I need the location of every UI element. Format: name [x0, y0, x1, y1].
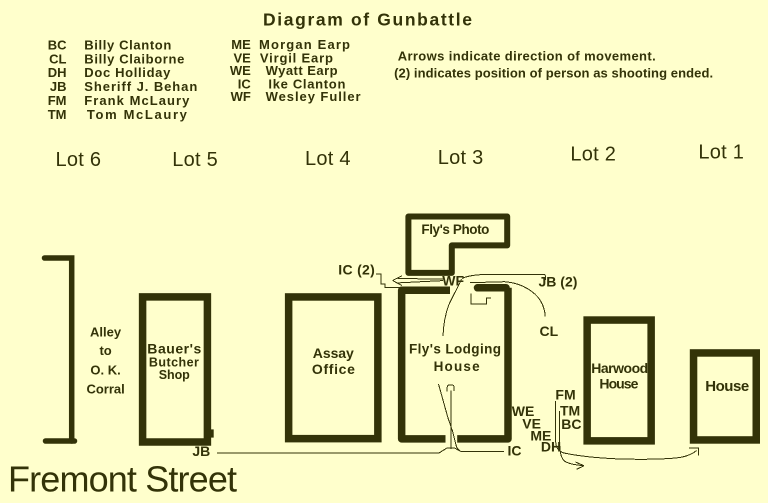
svg-text:Tom McLaury: Tom McLaury [87, 107, 188, 122]
svg-text:Wesley Fuller: Wesley Fuller [266, 89, 361, 104]
svg-text:DH: DH [541, 438, 561, 454]
svg-text:Frank McLaury: Frank McLaury [84, 93, 190, 108]
svg-text:Billy Claiborne: Billy Claiborne [84, 51, 184, 66]
svg-text:JB: JB [192, 443, 210, 459]
svg-text:House: House [434, 359, 480, 374]
svg-text:(2) indicates position of pers: (2) indicates position of person as shoo… [394, 66, 713, 81]
svg-text:Lot 4: Lot 4 [305, 148, 351, 170]
svg-text:Doc Holliday: Doc Holliday [84, 65, 171, 80]
svg-text:Fremont Street: Fremont Street [8, 459, 237, 500]
svg-text:Office: Office [312, 361, 355, 377]
svg-text:Alley: Alley [90, 325, 122, 340]
svg-text:Bauer's: Bauer's [147, 340, 201, 356]
svg-text:WF: WF [231, 89, 251, 104]
svg-text:JB (2): JB (2) [539, 274, 578, 290]
svg-text:Lot 2: Lot 2 [570, 143, 616, 165]
svg-text:Lot 3: Lot 3 [438, 147, 484, 169]
svg-text:IC: IC [508, 443, 522, 459]
svg-text:IC (2): IC (2) [338, 262, 375, 278]
svg-text:FM: FM [555, 387, 575, 403]
svg-text:House: House [599, 376, 638, 392]
svg-text:Corral: Corral [86, 382, 124, 397]
svg-text:JB: JB [50, 79, 67, 94]
svg-text:WF: WF [442, 273, 464, 289]
svg-text:Billy Clanton: Billy Clanton [84, 37, 171, 52]
svg-text:BC: BC [48, 37, 67, 52]
svg-text:Butcher: Butcher [149, 355, 199, 369]
svg-text:Lot 6: Lot 6 [56, 149, 102, 171]
svg-text:Harwood: Harwood [591, 360, 648, 376]
svg-text:TM: TM [48, 107, 67, 122]
svg-text:Fly's Lodging: Fly's Lodging [409, 341, 501, 356]
svg-text:BC: BC [561, 416, 581, 432]
svg-text:Lot 5: Lot 5 [172, 149, 218, 171]
svg-text:CL: CL [540, 323, 559, 339]
svg-text:Sheriff J. Behan: Sheriff J. Behan [84, 79, 197, 94]
svg-text:Diagram of Gunbattle: Diagram of Gunbattle [263, 10, 472, 30]
svg-text:O. K.: O. K. [90, 363, 120, 378]
svg-text:CL: CL [49, 51, 66, 66]
svg-text:to: to [99, 343, 111, 358]
svg-text:DH: DH [48, 65, 67, 80]
svg-text:Assay: Assay [313, 345, 354, 361]
svg-text:Fly's Photo: Fly's Photo [421, 222, 489, 237]
svg-text:Lot 1: Lot 1 [698, 141, 744, 163]
svg-text:FM: FM [48, 93, 67, 108]
svg-text:Shop: Shop [159, 368, 190, 382]
svg-text:Arrows indicate direction of m: Arrows indicate direction of movement. [398, 49, 656, 64]
svg-text:House: House [705, 378, 749, 395]
